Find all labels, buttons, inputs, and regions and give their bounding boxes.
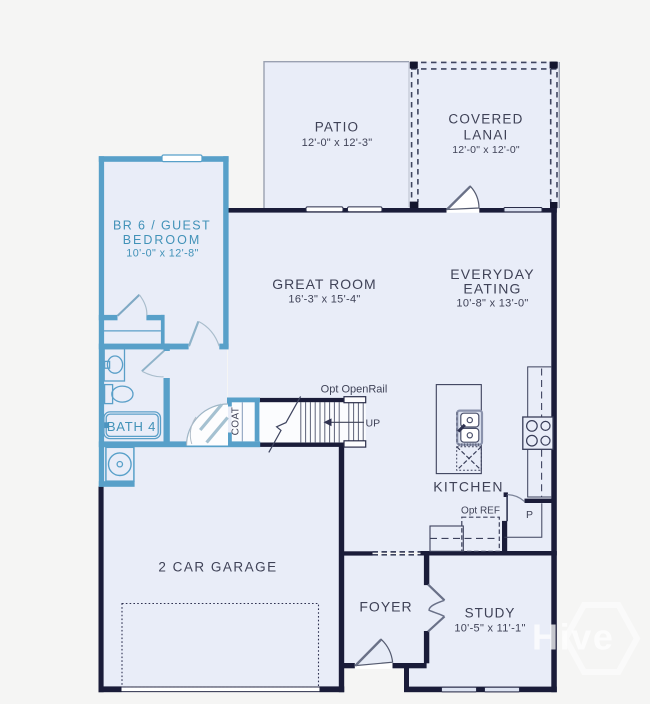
svg-text:KITCHEN: KITCHEN [433,479,504,495]
svg-text:Opt REF: Opt REF [461,506,500,517]
svg-text:BEDROOM: BEDROOM [123,233,202,247]
svg-text:UP: UP [366,418,381,430]
svg-text:LANAI: LANAI [463,128,508,143]
svg-text:10'-5" x 11'-1": 10'-5" x 11'-1" [454,623,525,635]
svg-text:16'-3" x 15'-4": 16'-3" x 15'-4" [288,294,360,306]
svg-text:PATIO: PATIO [315,120,360,135]
svg-text:12'-0" x 12'-3": 12'-0" x 12'-3" [302,137,373,149]
svg-text:Opt OpenRail: Opt OpenRail [321,384,388,396]
svg-text:GREAT ROOM: GREAT ROOM [272,276,376,292]
svg-text:10'-8" x 13'-0": 10'-8" x 13'-0" [456,298,528,310]
svg-text:STUDY: STUDY [465,606,516,621]
svg-text:2 CAR GARAGE: 2 CAR GARAGE [158,560,277,575]
svg-text:12'-0" x 12'-0": 12'-0" x 12'-0" [452,144,520,156]
svg-text:COAT: COAT [230,407,241,436]
svg-text:Hive: Hive [532,617,614,658]
svg-text:COVERED: COVERED [448,112,523,127]
svg-text:10'-0" x 12'-8": 10'-0" x 12'-8" [126,248,198,260]
svg-text:BR 6 / GUEST: BR 6 / GUEST [113,219,211,233]
svg-text:EATING: EATING [463,281,521,297]
svg-text:P: P [526,509,533,521]
svg-text:FOYER: FOYER [359,599,412,615]
svg-text:BATH 4: BATH 4 [107,419,156,434]
